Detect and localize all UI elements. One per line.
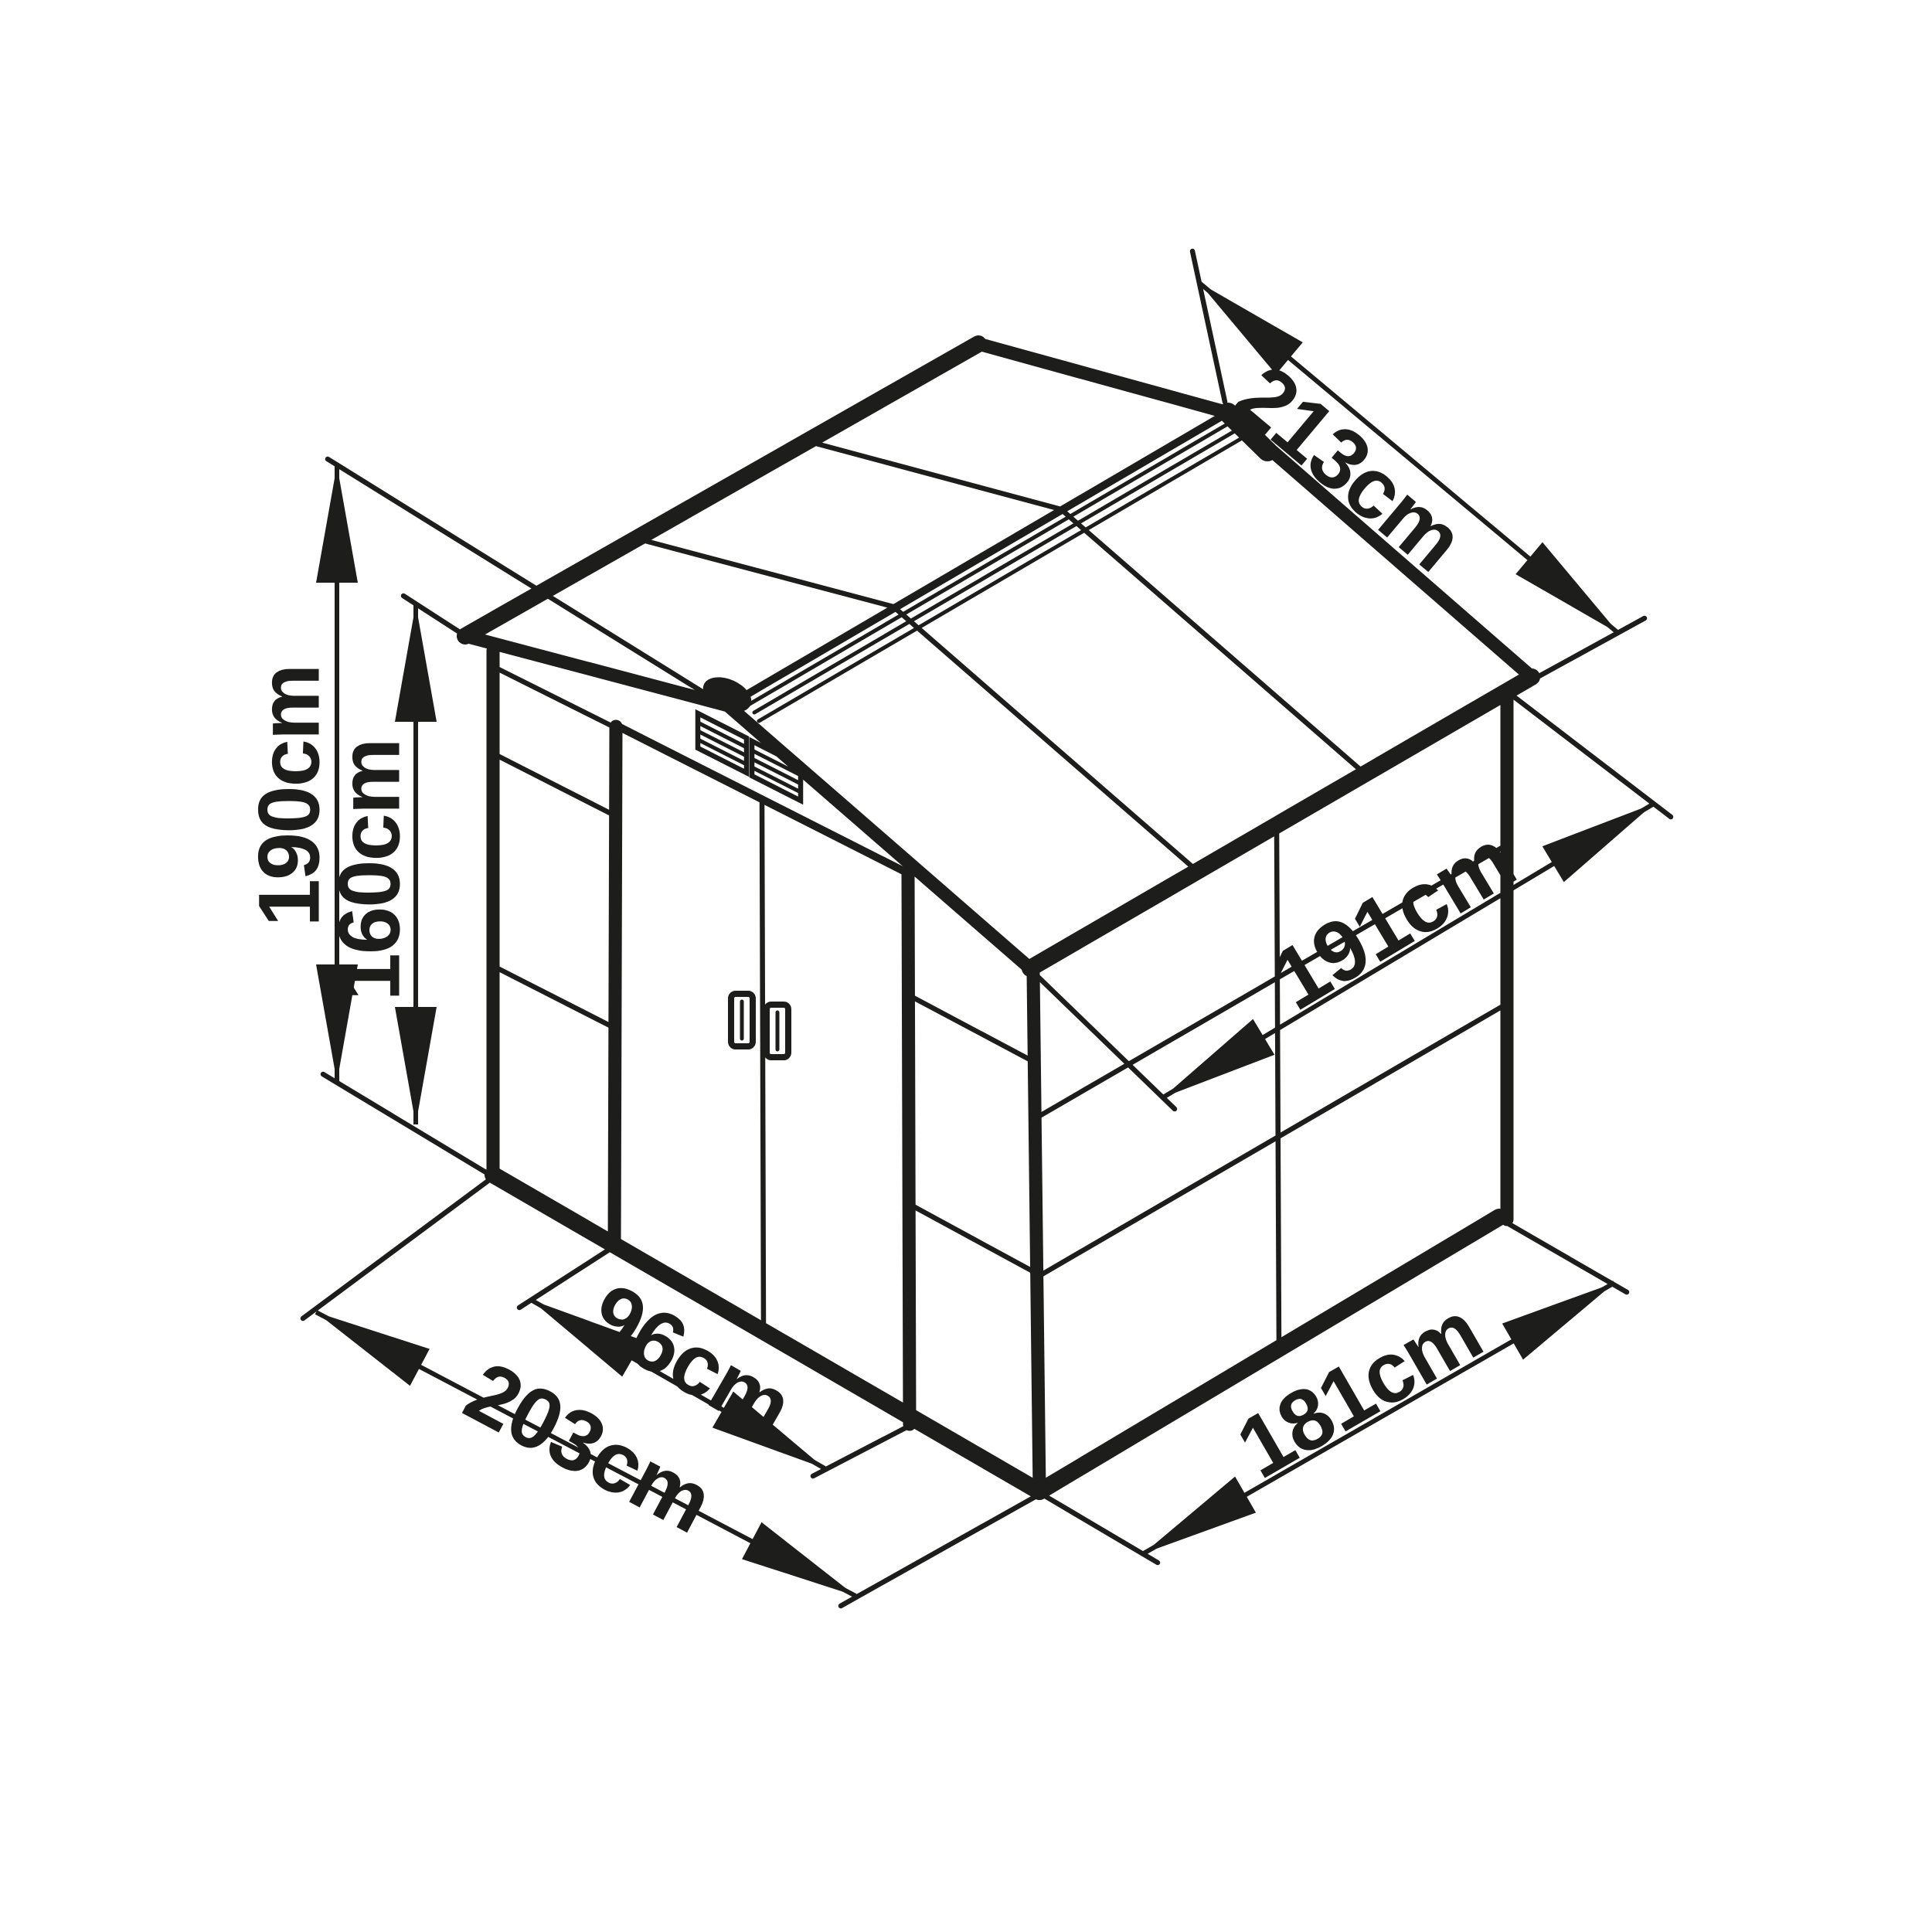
arrowhead xyxy=(742,1522,855,1596)
ext-line xyxy=(1502,1220,1627,1292)
door-handle-right xyxy=(767,1005,788,1057)
roof-right-seam-1 xyxy=(893,607,1197,871)
ridge-cap-line-1 xyxy=(750,421,1233,704)
side-wall-vertical-seam xyxy=(1277,828,1279,1352)
ext-line xyxy=(1509,693,1671,817)
ext-line xyxy=(1535,618,1645,679)
front-left-panel-seam-1 xyxy=(493,753,616,816)
arrowhead xyxy=(1515,543,1619,634)
arrowhead xyxy=(316,465,358,583)
dimension-annotations: 190cm 160cm 213cm 191cm xyxy=(241,251,1672,1606)
arrowhead xyxy=(316,1312,430,1386)
ext-line xyxy=(1192,251,1225,402)
ext-line xyxy=(328,459,711,697)
door-handle-left xyxy=(731,994,753,1046)
arrowhead xyxy=(1543,804,1654,882)
arrowhead xyxy=(1144,1477,1256,1553)
front-right-corner-post xyxy=(1033,974,1039,1492)
door-right-post xyxy=(908,873,910,1424)
arrowhead xyxy=(395,604,437,722)
dim-inner-depth: 191cm xyxy=(1033,693,1671,1109)
ridge-cap-line-3 xyxy=(759,438,1242,721)
ext-line xyxy=(1043,1495,1158,1563)
roof-left-seam-1 xyxy=(808,441,1061,509)
front-right-panel-seam-1 xyxy=(912,997,1034,1062)
arrowhead xyxy=(1502,1283,1614,1359)
dim-side-depth: 181cm xyxy=(1043,1220,1627,1563)
ext-line xyxy=(841,1496,1036,1606)
dim-label-213: 213cm xyxy=(1219,346,1481,588)
front-right-panel-seam-2 xyxy=(912,1206,1037,1274)
door-split-line xyxy=(762,799,764,1331)
ext-line xyxy=(1033,972,1175,1109)
front-left-panel-seam-2 xyxy=(493,966,616,1029)
roof-back-rake-left xyxy=(978,344,1228,413)
roof-left-seam-2 xyxy=(637,539,893,607)
dim-total-height: 190cm xyxy=(241,459,712,1176)
ridge-cap-line-2 xyxy=(754,430,1237,713)
shed-dimension-diagram: 190cm 160cm 213cm 191cm xyxy=(0,0,1932,1932)
dim-label-160: 160cm xyxy=(321,740,418,1002)
dim-roof-slope: 213cm xyxy=(1192,251,1645,679)
door-left-post xyxy=(614,726,616,1246)
ext-line xyxy=(323,1074,492,1176)
dim-label-191: 191cm xyxy=(1256,811,1530,1029)
arrowhead xyxy=(395,1007,437,1124)
roof-front-rake-right xyxy=(728,706,1030,968)
ext-line xyxy=(519,1247,613,1308)
ext-line xyxy=(813,1427,906,1476)
arrowhead xyxy=(1163,1019,1274,1097)
dim-label-181: 181cm xyxy=(1221,1282,1496,1497)
ext-line xyxy=(303,1178,492,1318)
drawing-canvas: 190cm 160cm 213cm 191cm xyxy=(0,0,1932,1932)
roof-right-seam-2 xyxy=(1061,509,1365,774)
ridge-crest xyxy=(745,413,1228,696)
